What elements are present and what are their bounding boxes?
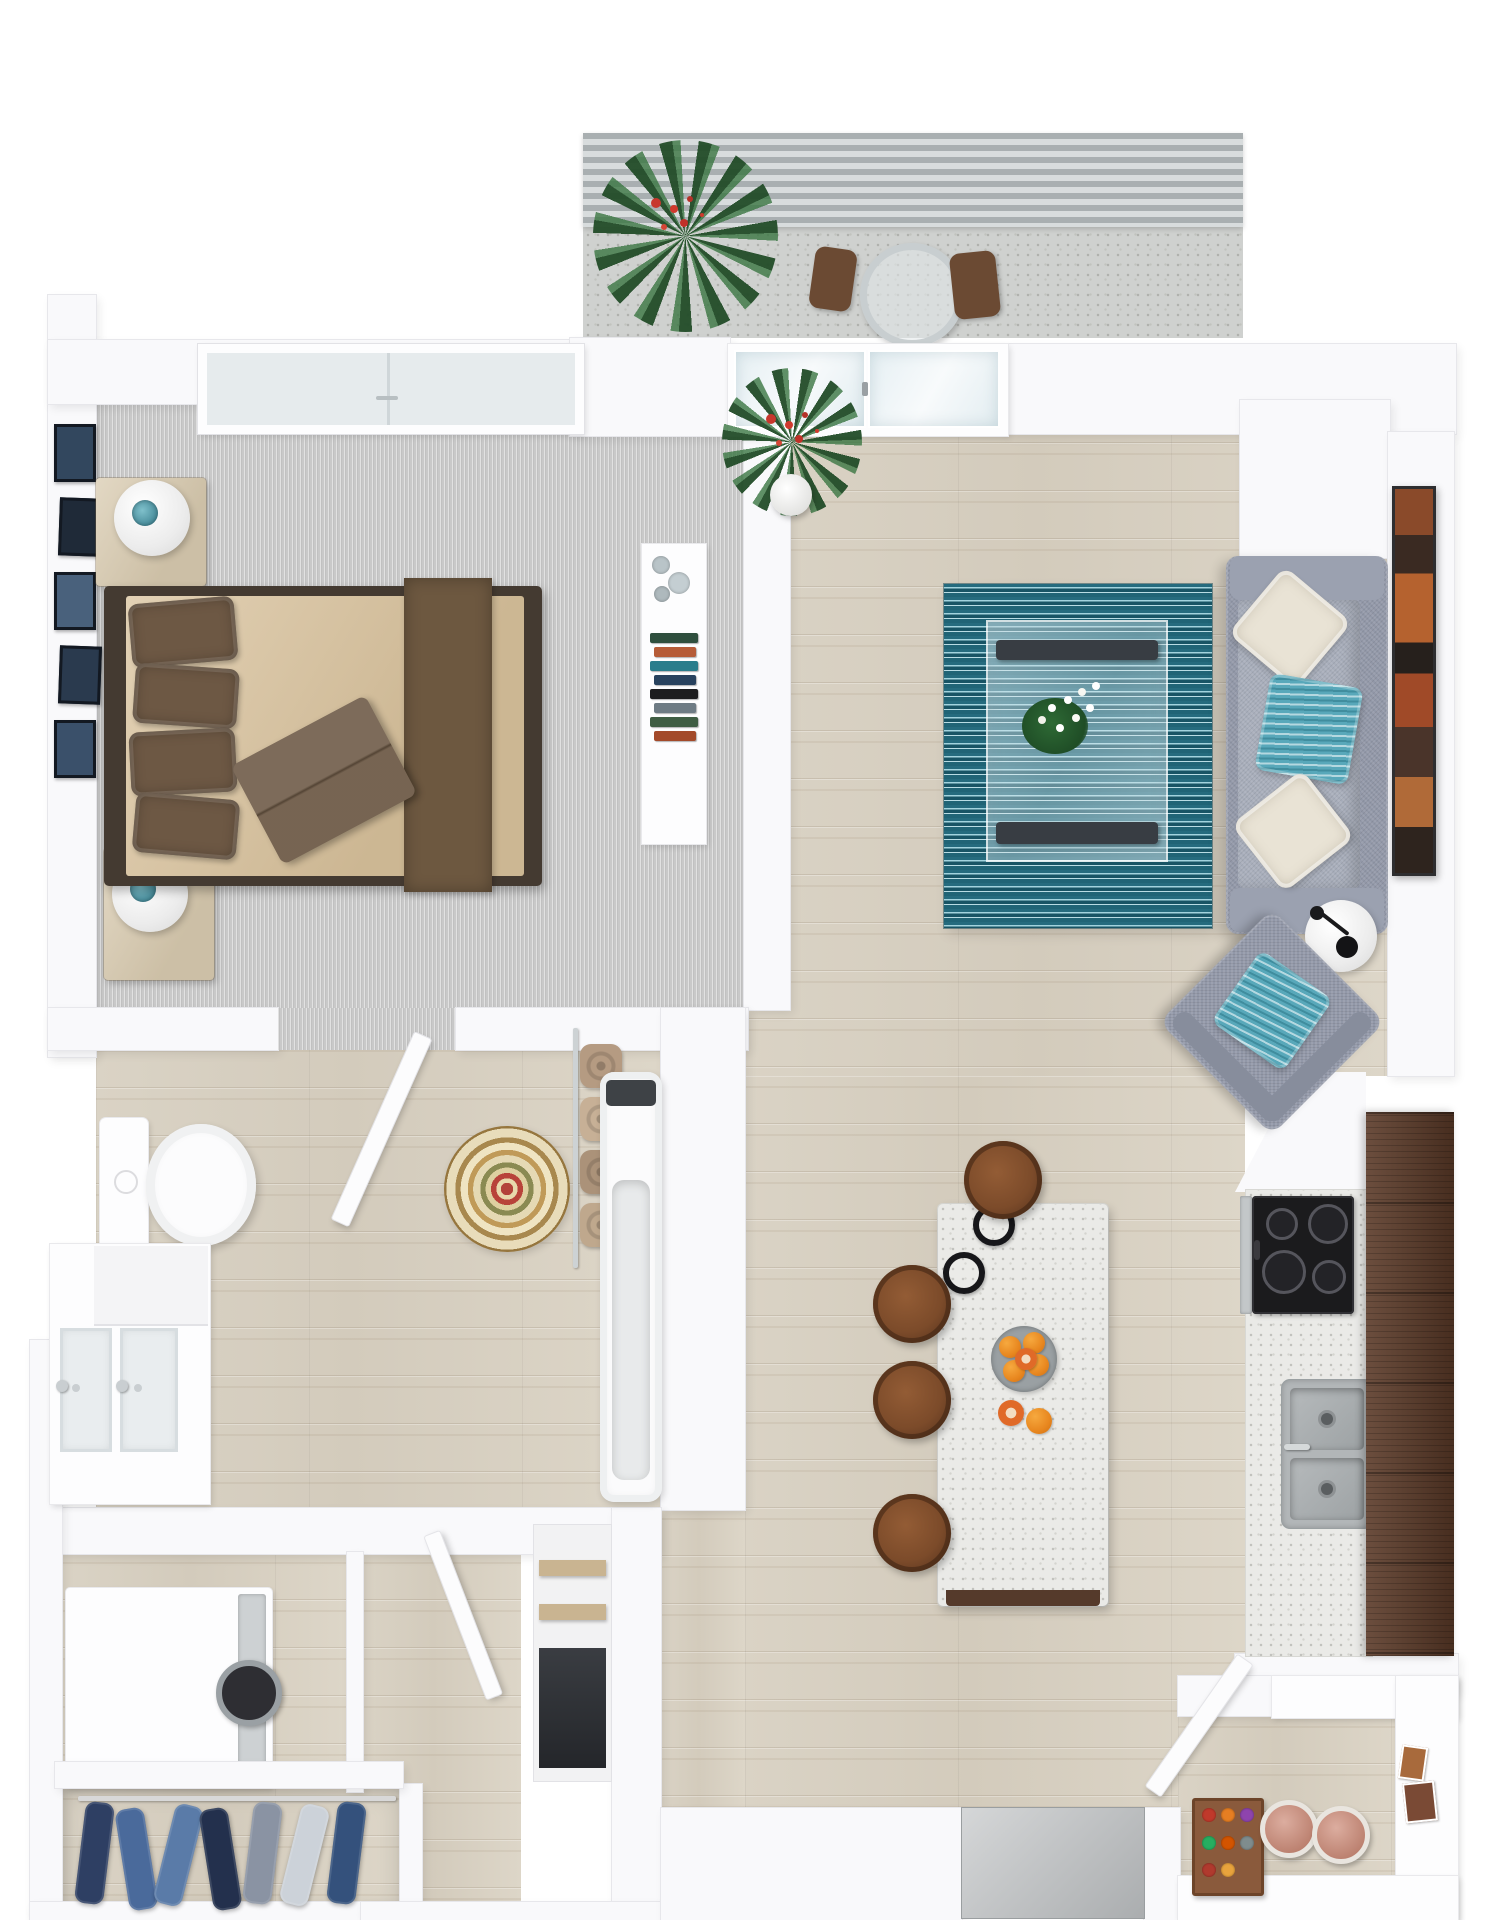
fruit-plate: [991, 1326, 1057, 1392]
kitchen-cabinets: [1366, 1112, 1454, 1656]
burner: [1262, 1250, 1306, 1294]
vanity-faucet: [56, 1380, 68, 1392]
utility-closet: [533, 1524, 612, 1782]
bedroom-window: [198, 344, 584, 434]
towel-ladder-rail: [573, 1028, 578, 1268]
red-flowers: [766, 414, 776, 424]
tub-faucet: [606, 1080, 656, 1106]
canister: [1260, 1800, 1318, 1858]
closet-rod: [78, 1796, 396, 1801]
tray-items: [1195, 1801, 1261, 1893]
tub-basin: [612, 1180, 650, 1480]
burner: [1308, 1204, 1348, 1244]
washer-door: [216, 1660, 282, 1726]
lamp-inner: [132, 500, 158, 526]
wall-closet-divider: [400, 1784, 422, 1920]
balcony-chair: [949, 250, 1002, 320]
console-books: [647, 630, 705, 816]
vanity-sink: [60, 1328, 112, 1452]
wall-artwork: [1392, 486, 1436, 876]
closet-shelf: [539, 1560, 606, 1576]
sliding-door-pane: [870, 352, 998, 426]
plant-pot: [770, 474, 812, 516]
bed-pillow: [128, 727, 237, 796]
burner: [1312, 1260, 1346, 1294]
wall-bathroom-right: [661, 1008, 745, 1510]
wall-living-top-right: [1240, 400, 1390, 558]
cooktop: [1252, 1196, 1354, 1314]
oven-front: [1240, 1196, 1252, 1314]
bar-stool: [873, 1361, 951, 1439]
mandala-rug: [444, 1126, 570, 1252]
balcony-table: [860, 243, 964, 347]
entry-door-mat: [962, 1808, 1144, 1918]
wall-laundry-right: [347, 1552, 363, 1792]
toilet-bowl: [146, 1124, 256, 1246]
wall-entry-right-of-mat: [1144, 1808, 1180, 1920]
washer-dryer: [66, 1588, 272, 1788]
wall-hall-right: [612, 1508, 661, 1920]
bar-stool: [873, 1265, 951, 1343]
orange-half: [1015, 1348, 1037, 1370]
bedroom-media-console: [642, 544, 706, 844]
sphere-table-lamp: [114, 480, 190, 556]
wall-balcony-left: [570, 338, 730, 436]
floor-plan-render: [0, 0, 1487, 1920]
bar-stool: [873, 1494, 951, 1572]
corridor-floor: [661, 1508, 745, 1810]
wall-bedroom-bathroom-a: [48, 1008, 278, 1050]
bed-pillow: [132, 792, 241, 861]
cooktop-knob: [1254, 1240, 1260, 1260]
toilet-tank: [100, 1118, 148, 1250]
sink-drain: [1321, 1413, 1333, 1425]
wall-hall-bottom: [361, 1902, 661, 1920]
sink-faucet: [1284, 1444, 1310, 1450]
sink-drain: [1321, 1483, 1333, 1495]
closet-shelf: [539, 1604, 606, 1620]
photo-card: [1402, 1780, 1438, 1823]
window-latch: [376, 396, 398, 400]
closet-dark-interior: [539, 1648, 606, 1768]
orange: [1026, 1408, 1052, 1434]
kitchen-sink: [1282, 1380, 1372, 1528]
sofa-pillow-teal: [1254, 673, 1364, 786]
coffee-table-rail: [996, 640, 1158, 660]
bed-pillow: [127, 596, 238, 669]
bed-pillow: [132, 662, 240, 729]
coffee-table-rail: [996, 822, 1158, 844]
bathtub: [600, 1072, 662, 1502]
closet-shelf-band: [55, 1762, 403, 1788]
sink-basin: [1290, 1388, 1364, 1450]
decanter: [668, 572, 690, 594]
armchair-body: [1159, 909, 1385, 1135]
window-mullion: [387, 353, 390, 425]
orange-half: [998, 1400, 1024, 1426]
decanter: [652, 556, 670, 574]
sink-basin: [1290, 1458, 1364, 1520]
photo-card: [1398, 1744, 1428, 1781]
island-candle-ring: [943, 1252, 985, 1294]
sliding-door-handle: [862, 382, 868, 396]
balcony-flower-plant: [593, 140, 778, 332]
bathroom-vanity: [50, 1244, 210, 1504]
vanity-sink: [120, 1328, 178, 1452]
vanity-faucet: [116, 1380, 128, 1392]
flush-button: [114, 1170, 138, 1194]
vanity-cabinet: [94, 1246, 208, 1326]
snack-tray: [1192, 1798, 1264, 1896]
canister: [1312, 1806, 1370, 1864]
gallery-frames: [54, 424, 100, 796]
hanging-clothes: [80, 1802, 398, 1914]
red-flowers: [651, 198, 661, 208]
balcony-chair: [808, 245, 858, 312]
orchid-flowers: [1048, 704, 1056, 712]
bar-stool: [964, 1141, 1042, 1219]
wall-entry-left-of-mat: [661, 1808, 962, 1920]
decanter: [654, 586, 670, 602]
island-base: [946, 1590, 1100, 1606]
armchair: [1167, 917, 1377, 1127]
bed-runner: [404, 578, 492, 892]
burner: [1266, 1208, 1298, 1240]
